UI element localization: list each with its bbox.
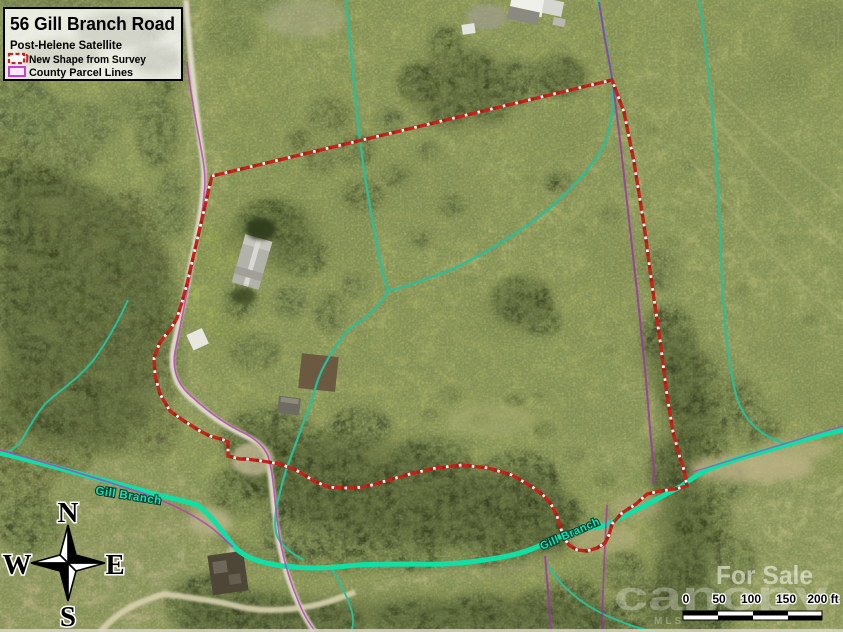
svg-text:50: 50: [712, 592, 726, 606]
svg-text:E: E: [105, 549, 124, 581]
svg-text:S: S: [60, 601, 76, 632]
svg-text:150: 150: [776, 592, 796, 606]
svg-text:County Parcel Lines: County Parcel Lines: [29, 67, 133, 79]
svg-text:100: 100: [741, 592, 761, 606]
svg-text:MLS: MLS: [654, 616, 684, 627]
svg-text:For Sale: For Sale: [716, 560, 813, 590]
svg-text:W: W: [3, 549, 32, 581]
svg-text:0: 0: [683, 592, 690, 606]
svg-text:56 Gill Branch Road: 56 Gill Branch Road: [10, 14, 175, 34]
svg-text:Post-Helene Satellite: Post-Helene Satellite: [10, 40, 122, 52]
svg-text:200 ft: 200 ft: [807, 592, 838, 606]
svg-text:N: N: [58, 497, 79, 529]
svg-text:New Shape from Survey: New Shape from Survey: [29, 54, 147, 66]
